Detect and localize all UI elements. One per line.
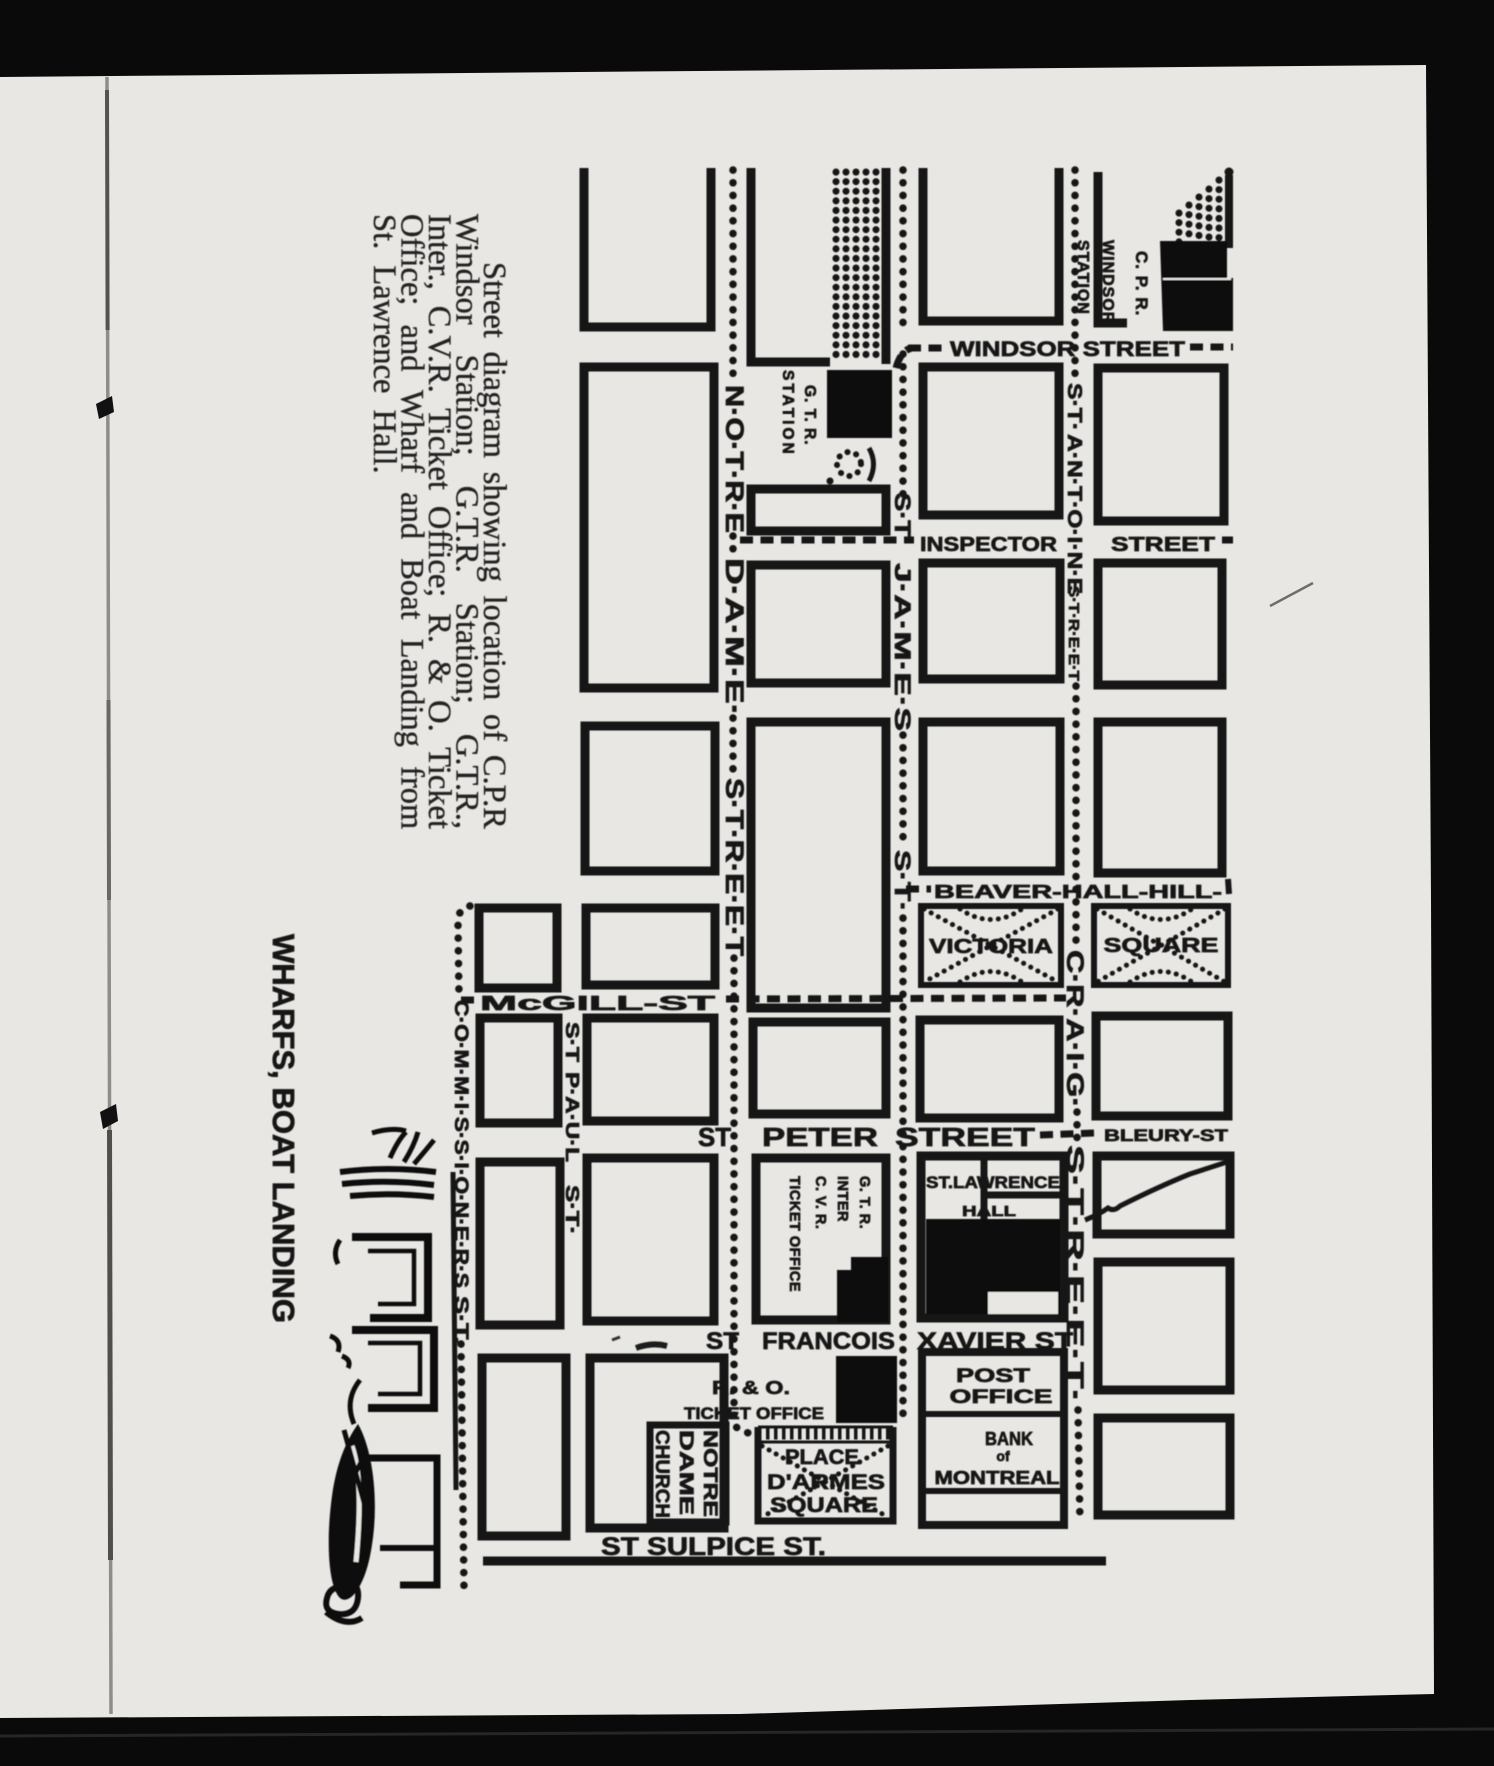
svg-text:C. V. R.: C. V. R. xyxy=(812,1176,828,1229)
svg-text:INTER: INTER xyxy=(834,1176,850,1222)
svg-text:S·T: S·T xyxy=(890,493,915,538)
svg-text:PLACE: PLACE xyxy=(785,1446,859,1469)
svg-text:FRANCOIS: FRANCOIS xyxy=(762,1328,895,1355)
svg-text:WHARFS, BOAT LANDING: WHARFS, BOAT LANDING xyxy=(266,934,301,1323)
svg-text:N·O·T·R·E: N·O·T·R·E xyxy=(720,385,748,533)
svg-text:STATION: STATION xyxy=(779,370,796,457)
svg-text:TICKET OFFICE: TICKET OFFICE xyxy=(786,1176,802,1292)
svg-text:A·N·T·O·I·N·E: A·N·T·O·I·N·E xyxy=(1063,434,1085,594)
svg-text:R. & O.: R. & O. xyxy=(712,1378,790,1398)
svg-text:ST: ST xyxy=(698,1122,731,1152)
svg-text:D·A·M·E·: D·A·M·E· xyxy=(720,558,748,716)
svg-text:STREET: STREET xyxy=(895,1122,1035,1152)
svg-text:STREET: STREET xyxy=(1111,534,1215,556)
svg-text:S·T·R·E·E·T·: S·T·R·E·E·T· xyxy=(1061,1145,1088,1403)
svg-text:S·T·: S·T· xyxy=(1063,383,1085,431)
svg-text:G. T. R.: G. T. R. xyxy=(801,385,818,446)
svg-text:of: of xyxy=(996,1448,1010,1464)
svg-text:STATION: STATION xyxy=(1074,240,1091,315)
svg-text:VICTORIA: VICTORIA xyxy=(929,936,1053,958)
svg-text:J·A·M·E·S: J·A·M·E·S xyxy=(890,563,915,731)
svg-text:St. Lawrence Hall.: St. Lawrence Hall. xyxy=(366,214,402,474)
svg-text:CHURCH: CHURCH xyxy=(651,1430,673,1518)
svg-text:TICKET OFFICE: TICKET OFFICE xyxy=(684,1404,824,1423)
svg-text:BLEURY-ST: BLEURY-ST xyxy=(1104,1127,1228,1145)
svg-text:XAVIER ST: XAVIER ST xyxy=(917,1328,1073,1355)
svg-text:WINDSOR STREET: WINDSOR STREET xyxy=(950,338,1185,361)
svg-text:S·T·: S·T· xyxy=(562,1185,582,1235)
svg-text:ST.LAWRENCE: ST.LAWRENCE xyxy=(926,1173,1060,1192)
svg-text:S·T·: S·T· xyxy=(890,850,915,912)
svg-text:ST: ST xyxy=(706,1328,739,1355)
svg-text:POST: POST xyxy=(956,1366,1031,1387)
svg-text:SQUARE: SQUARE xyxy=(770,1494,878,1517)
svg-text:S·T·R·E·E·T: S·T·R·E·E·T xyxy=(720,778,748,956)
svg-text:OFFICE: OFFICE xyxy=(950,1387,1053,1408)
svg-text:BEAVER-HALL-HILL-: BEAVER-HALL-HILL- xyxy=(934,881,1222,902)
svg-text:SQUARE: SQUARE xyxy=(1104,935,1219,957)
svg-text:NOTRE: NOTRE xyxy=(699,1430,721,1517)
svg-text:INSPECTOR: INSPECTOR xyxy=(920,534,1058,556)
svg-text:C·R·A·I·G·: C·R·A·I·G· xyxy=(1061,950,1088,1108)
svg-text:S·T·R·E·E·T: S·T·R·E·E·T xyxy=(1065,586,1082,681)
svg-text:S·T.: S·T. xyxy=(450,1296,471,1344)
svg-text:DAME: DAME xyxy=(675,1430,697,1515)
svg-text:BANK: BANK xyxy=(985,1429,1033,1449)
svg-text:G. T. R.: G. T. R. xyxy=(856,1176,872,1229)
svg-text:S·T: S·T xyxy=(562,1022,582,1062)
svg-text:HALL: HALL xyxy=(962,1203,1016,1220)
svg-text:WINDSOR: WINDSOR xyxy=(1099,240,1116,324)
svg-text:PETER: PETER xyxy=(762,1122,878,1152)
svg-text:P·A·U·L: P·A·U·L xyxy=(562,1072,582,1162)
svg-text:C. P. R.: C. P. R. xyxy=(1132,251,1151,316)
svg-text:C·O·M·M·I·S·S·I·O·N·E·R·S: C·O·M·M·I·S·S·I·O·N·E·R·S xyxy=(450,1000,471,1288)
svg-text:McGILL-ST: McGILL-ST xyxy=(480,992,716,1015)
svg-text:D'ARMES: D'ARMES xyxy=(767,1471,885,1494)
svg-text:MONTREAL: MONTREAL xyxy=(935,1468,1060,1488)
